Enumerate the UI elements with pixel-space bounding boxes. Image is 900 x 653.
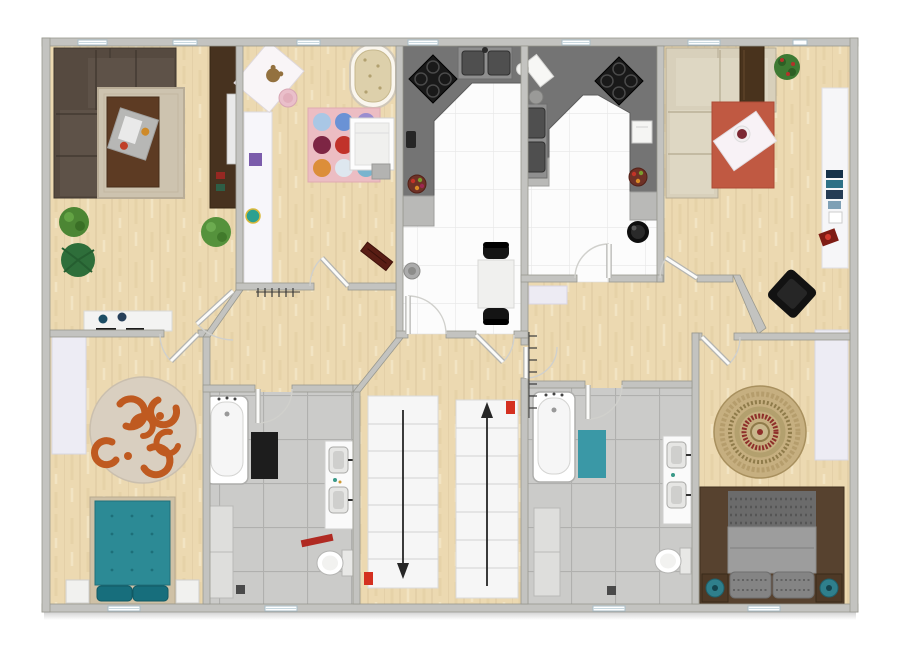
vanity-double-left [325,441,353,529]
wall-between-kitchens [521,46,528,338]
wall-outer-left [42,38,50,612]
wall-livingR-bottom-b [697,275,733,282]
plant-left-2 [61,243,95,277]
wall-kitchenR-bottom-b [609,275,657,282]
hall-closet-right [529,286,567,304]
wall-kids-kitchen [396,46,403,338]
kitchen-table-left [478,242,514,325]
floor-plan-canvas [0,0,900,653]
wall-bedroomR-bath [692,333,699,604]
kids-chair-pink [279,89,297,107]
wall-kitchenL-bottom-b [446,331,476,338]
wall-bedroomL-bath [203,337,210,604]
wall-outer-right [850,38,858,612]
plant-left-1 [59,207,89,237]
toilet-left [317,550,353,576]
wall-bathL-top-a [203,385,255,392]
window-bottom-2 [265,606,297,611]
sink-double-left [458,47,512,79]
nightstand-left-1 [66,580,89,603]
sideboard-right [740,46,764,104]
floor-drain-right [607,586,616,595]
wall-kitchen-living-right [657,46,664,282]
wall-living-left-bottom-a [50,330,164,337]
cabinet-bath-right-1 [534,508,560,552]
wall-outer-top [42,38,858,46]
wall-outer-bottom [42,604,858,612]
cabinet-bath-right-2 [534,552,560,596]
wardrobe-bedroom-right [815,330,848,460]
window-top-3 [297,40,320,45]
wall-kitchenL-bottom-c [514,331,528,338]
stair-marker-right [506,401,515,414]
bathtub-right [533,392,575,482]
nightstand-right-1 [702,574,728,602]
kids-desk-shelf [244,112,272,284]
window-bottom-4 [748,606,780,611]
floor-plan-drawing [0,0,900,653]
vanity-double-right [663,436,691,524]
stair-marker-left [364,572,373,585]
wall-stairs-bathR-b [521,378,528,604]
plate-right [734,126,750,142]
window-bottom-1 [108,606,140,611]
rug-swirl-orange [90,377,196,483]
window-top-4 [408,40,438,45]
trash-bin-right [627,221,649,243]
nightstand-left-2 [176,580,199,603]
kids-bed-white [350,118,394,179]
wall-bathL-stairs [353,385,360,604]
bassinet-oval [350,44,396,108]
wall-bedroomR-top-b [734,333,850,340]
pot-left [404,263,420,279]
window-bottom-3 [593,606,625,611]
wall-bathR-top-b [622,381,692,388]
floor-drain-left [236,585,245,594]
window-top-6 [688,40,720,45]
nightstand-right-2 [816,574,842,602]
toilet-right [655,548,691,574]
bed-teal [90,497,175,604]
rug-jute-round [714,386,806,478]
window-top-7 [793,40,807,45]
console-living-left [84,311,172,332]
plant-left-3 [201,217,231,247]
wall-stairs-bathR-a [521,338,528,345]
bathtub-left [206,396,248,484]
wall-kitchenR-bottom-a [521,275,577,282]
wardrobe-bedroom-left [52,336,86,454]
window-top-2 [173,40,197,45]
wall-living-kids [236,46,243,290]
bathmat-black-left [251,432,278,479]
wall-kids-bottom-a [236,283,314,290]
plant-right [774,54,800,80]
wall-bathL-top-b [292,385,353,392]
window-top-1 [78,40,107,45]
tv-unit-left [210,46,238,208]
window-top-5 [562,40,590,45]
plan-bottom-shadow [44,612,856,620]
wall-kids-bottom-b [348,283,396,290]
bathmat-teal-right [578,430,606,478]
